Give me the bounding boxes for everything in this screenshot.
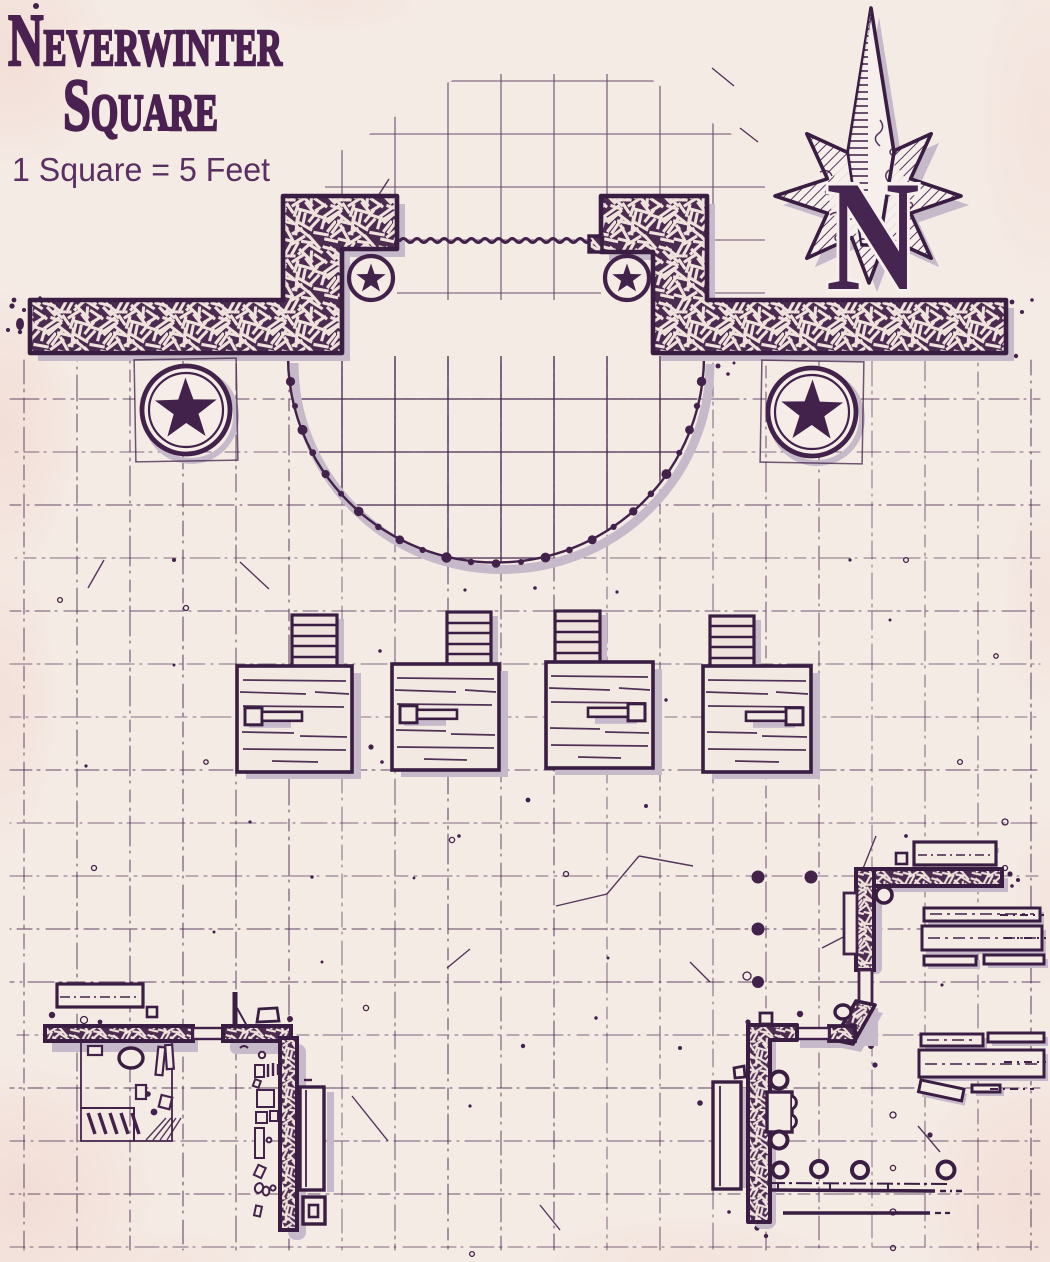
svg-text:1 Square = 5 Feet: 1 Square = 5 Feet	[12, 151, 270, 188]
svg-text:Square: Square	[63, 65, 218, 147]
svg-text:N: N	[826, 149, 920, 324]
